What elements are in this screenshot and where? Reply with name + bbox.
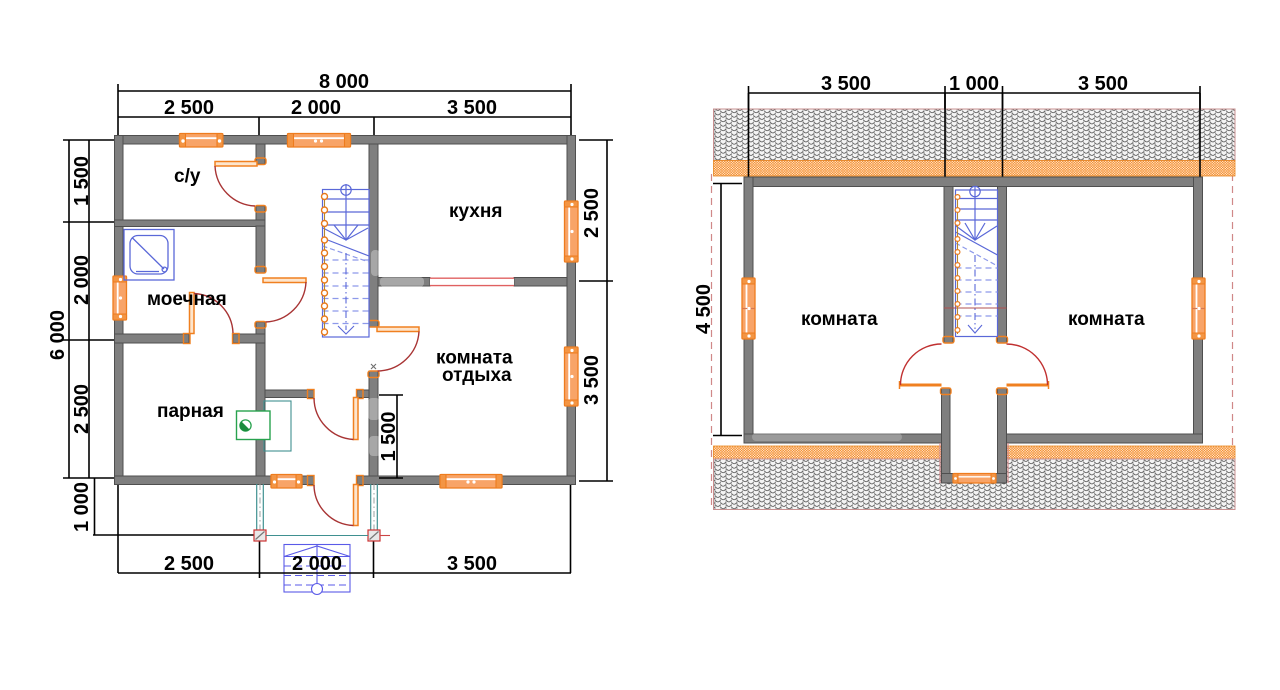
- svg-text:3 500: 3 500: [1078, 73, 1128, 95]
- svg-text:2 500: 2 500: [164, 553, 214, 575]
- svg-text:1 500: 1 500: [71, 156, 93, 206]
- svg-text:3 500: 3 500: [581, 355, 603, 405]
- svg-text:отдыха: отдыха: [442, 365, 512, 386]
- svg-text:1 000: 1 000: [71, 482, 93, 532]
- svg-text:комната: комната: [801, 309, 878, 330]
- svg-text:3 500: 3 500: [447, 553, 497, 575]
- svg-text:кухня: кухня: [449, 201, 502, 222]
- svg-text:комната: комната: [1068, 309, 1145, 330]
- svg-text:8 000: 8 000: [319, 71, 369, 93]
- svg-text:2 500: 2 500: [164, 97, 214, 119]
- svg-text:2 000: 2 000: [292, 553, 342, 575]
- svg-text:1 000: 1 000: [949, 73, 999, 95]
- svg-text:3 500: 3 500: [821, 73, 871, 95]
- svg-text:2 500: 2 500: [71, 384, 93, 434]
- svg-text:моечная: моечная: [147, 289, 227, 310]
- svg-text:1 500: 1 500: [378, 411, 400, 461]
- svg-text:с/у: с/у: [174, 166, 201, 187]
- svg-text:2 000: 2 000: [71, 255, 93, 305]
- svg-text:6 000: 6 000: [47, 310, 69, 360]
- svg-text:2 500: 2 500: [581, 188, 603, 238]
- svg-text:2 000: 2 000: [291, 97, 341, 119]
- svg-text:парная: парная: [157, 401, 224, 422]
- svg-text:4 500: 4 500: [693, 284, 715, 334]
- svg-text:3 500: 3 500: [447, 97, 497, 119]
